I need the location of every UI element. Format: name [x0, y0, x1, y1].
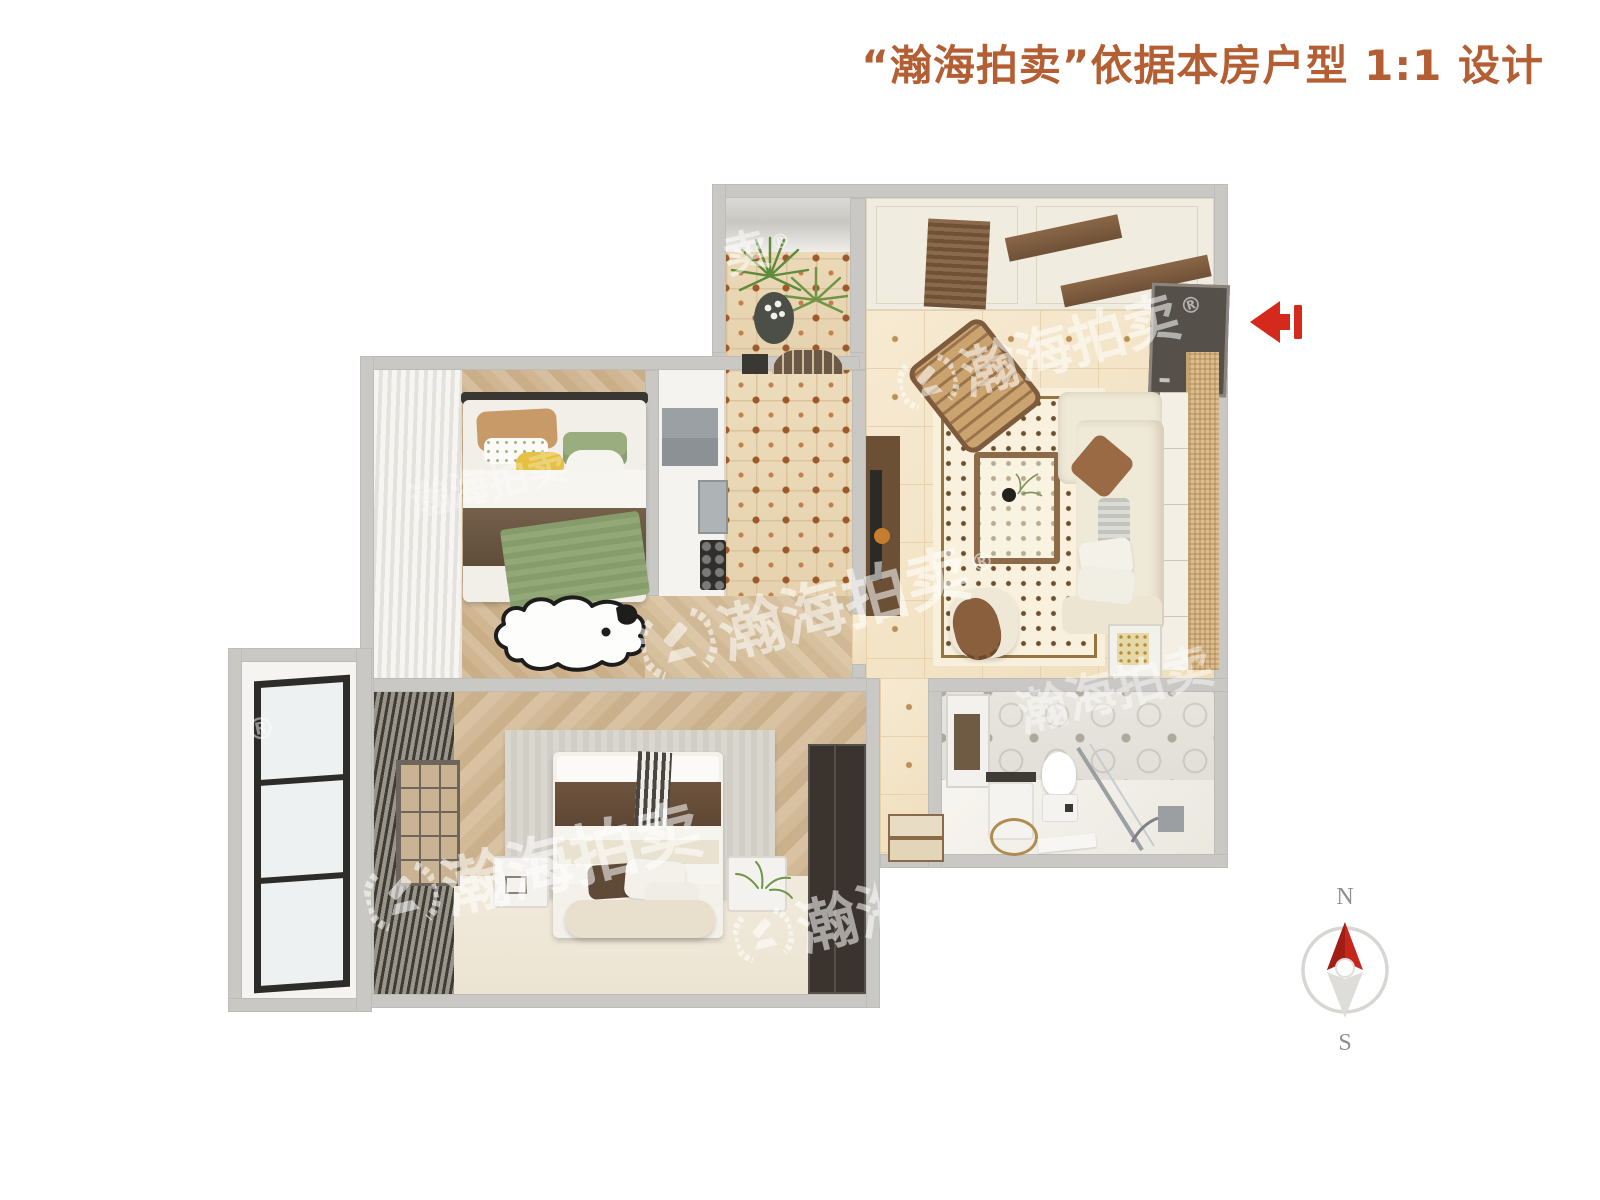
nightstand-plant [728, 848, 798, 904]
nightstand-left [493, 856, 549, 908]
wall-balconyL-left [228, 648, 242, 1012]
vanity-counter [986, 772, 1036, 782]
wall-bedroom2-bottom [360, 994, 880, 1008]
living-corridor-opening [852, 614, 866, 664]
side-table-top [1117, 633, 1149, 665]
balcony-window [254, 675, 350, 994]
table-flowers [1008, 466, 1044, 502]
coffee-table [974, 452, 1060, 564]
wall-bedroom1-kitchen [645, 370, 659, 596]
wall-living-west-stub [852, 664, 866, 678]
tv-screen [870, 470, 882, 580]
tv-console [866, 436, 900, 616]
window-bar [261, 774, 343, 786]
floorplan-image: “瀚海拍卖”依据本房户型 1:1 设计 [0, 0, 1600, 1200]
dog-rug [488, 592, 653, 676]
wall-middle-left [360, 356, 374, 692]
wall-living-west [852, 370, 866, 614]
entrance-arrow-icon [1248, 294, 1306, 350]
wall-bathroom-top [928, 678, 1228, 692]
wall-bedroom2-top [360, 678, 880, 692]
living-right-wall-panels [1160, 392, 1188, 670]
door-mat [888, 838, 944, 862]
wall-balconyL-bottom [228, 998, 372, 1012]
laundry-door [954, 714, 980, 770]
entry-side-table [1108, 624, 1162, 678]
room-balcony-left [242, 662, 356, 998]
window-bar [261, 872, 343, 884]
compass: N S [1290, 878, 1400, 1060]
compass-south-label: S [1338, 1030, 1351, 1056]
bed2-bench [565, 900, 715, 938]
wall-top [712, 184, 1228, 198]
potted-plants [728, 224, 848, 364]
stove [700, 540, 726, 590]
door-mat [888, 814, 944, 838]
door-handle [1160, 378, 1170, 382]
bedroom2-lattice-screen [396, 760, 460, 886]
page-title: “瀚海拍卖”依据本房户型 1:1 设计 [861, 32, 1544, 93]
decor-dish [874, 528, 890, 544]
nightstand-handle [505, 876, 527, 894]
corridor [645, 596, 852, 678]
fridge [662, 408, 718, 466]
round-mirror [990, 818, 1038, 856]
wall-balconyL-right [356, 648, 372, 1012]
pillow-white [1076, 565, 1135, 605]
bedroom1-curtains [374, 370, 462, 678]
wall-balcony-left [712, 184, 726, 370]
ceiling-wood-slats [924, 218, 991, 309]
wall-bedroom2-right [866, 678, 880, 1008]
wall-balcony-living [850, 198, 866, 370]
wall-balconyL-top [228, 648, 372, 662]
rattan-panel [1186, 352, 1219, 670]
kitchen-sink [698, 480, 728, 534]
room-kitchen [726, 370, 852, 596]
laundry-cabinet [946, 694, 990, 788]
compass-north-label: N [1336, 884, 1353, 910]
wardrobe [808, 744, 866, 994]
bed2-striped-runner [634, 751, 672, 837]
